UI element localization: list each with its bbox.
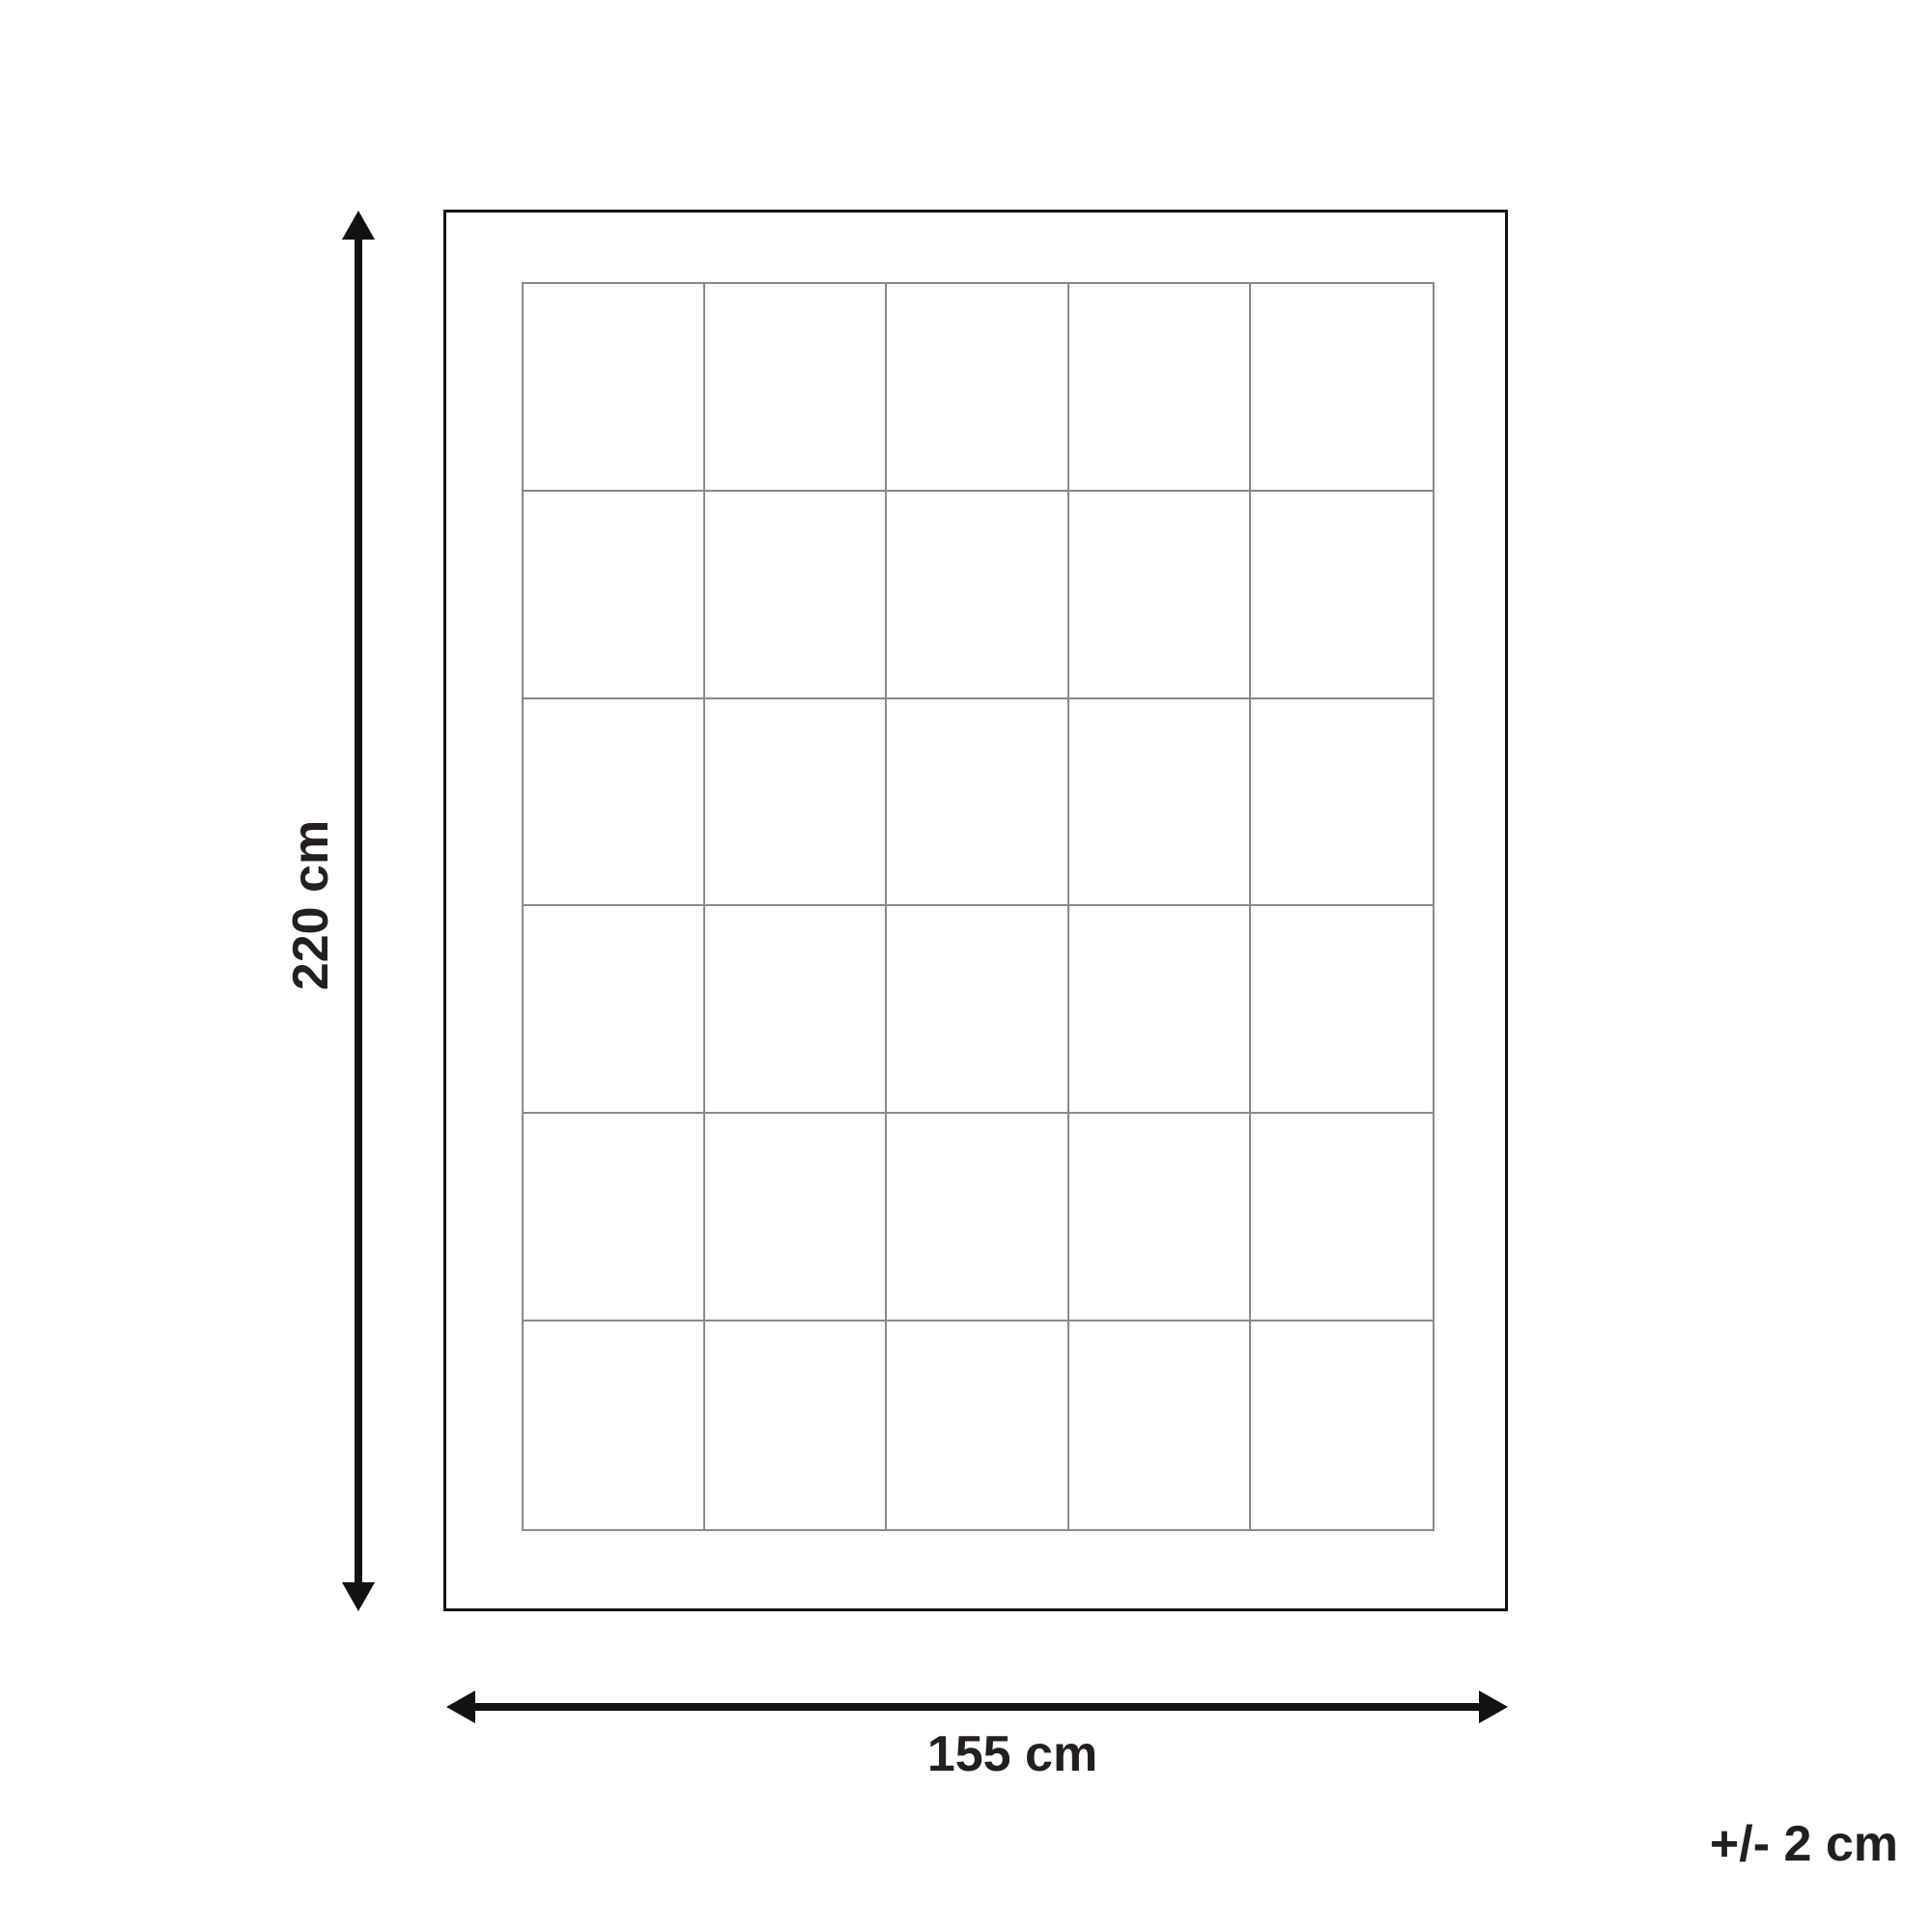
grid-cell bbox=[1069, 1321, 1251, 1529]
grid-cell bbox=[524, 1321, 705, 1529]
grid-cell bbox=[524, 906, 705, 1114]
grid-cell bbox=[1251, 906, 1433, 1114]
grid-cell bbox=[705, 906, 887, 1114]
grid-cell bbox=[1251, 1321, 1433, 1529]
grid-cell bbox=[1069, 1114, 1251, 1321]
grid-cell bbox=[524, 492, 705, 699]
grid-cell bbox=[705, 284, 887, 492]
arrowhead-down-icon bbox=[342, 1582, 375, 1611]
grid-cell bbox=[705, 492, 887, 699]
grid-cell bbox=[705, 1114, 887, 1321]
tolerance-label: +/- 2 cm bbox=[1415, 1815, 1898, 1873]
grid-cell bbox=[1069, 284, 1251, 492]
width-arrow-shaft bbox=[469, 1703, 1485, 1711]
grid-cell bbox=[1251, 284, 1433, 492]
grid-cell bbox=[1069, 906, 1251, 1114]
grid-cell bbox=[887, 699, 1068, 907]
grid-cell bbox=[1069, 699, 1251, 907]
grid-cell bbox=[887, 906, 1068, 1114]
height-arrow-shaft bbox=[355, 234, 362, 1588]
arrowhead-right-icon bbox=[1479, 1690, 1508, 1723]
grid-cell bbox=[887, 492, 1068, 699]
grid-cell bbox=[887, 1321, 1068, 1529]
height-dimension-label: 220 cm bbox=[282, 654, 340, 1156]
height-dimension-arrow bbox=[342, 211, 375, 1611]
grid-cell bbox=[887, 284, 1068, 492]
width-dimension-arrow bbox=[446, 1690, 1508, 1723]
grid-cell bbox=[1069, 492, 1251, 699]
grid-cell bbox=[705, 1321, 887, 1529]
grid-cell bbox=[524, 284, 705, 492]
grid-cell bbox=[524, 1114, 705, 1321]
grid-cell bbox=[1251, 699, 1433, 907]
grid-cell bbox=[1251, 492, 1433, 699]
width-dimension-label: 155 cm bbox=[867, 1725, 1157, 1783]
grid-cell bbox=[1251, 1114, 1433, 1321]
grid-cell bbox=[887, 1114, 1068, 1321]
grid-cell bbox=[705, 699, 887, 907]
grid-cell bbox=[524, 699, 705, 907]
product-dimension-diagram: 220 cm 155 cm +/- 2 cm bbox=[0, 0, 1932, 1932]
stitch-grid bbox=[522, 282, 1435, 1531]
